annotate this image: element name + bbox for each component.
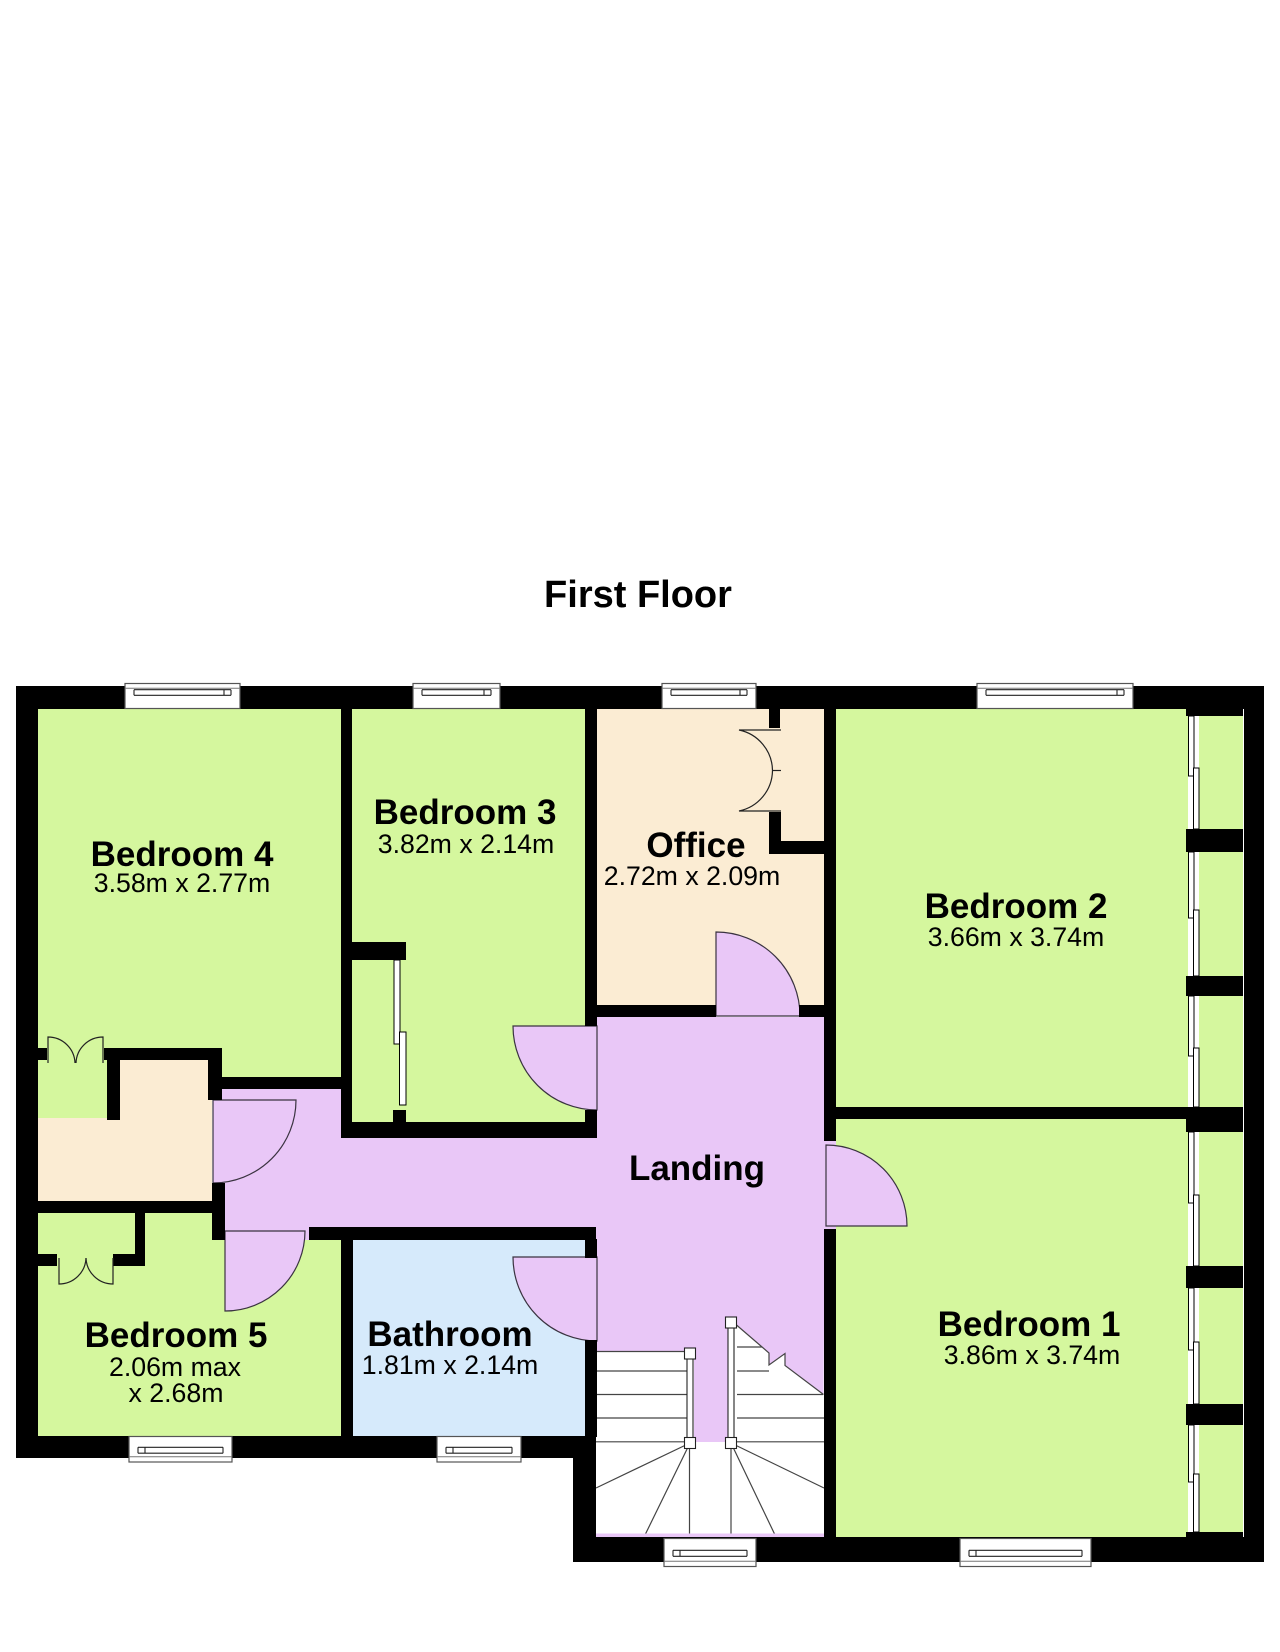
svg-text:Bedroom 2: Bedroom 2 [925, 887, 1108, 926]
svg-text:1.81m x 2.14m: 1.81m x 2.14m [362, 1350, 539, 1380]
svg-text:3.82m x 2.14m: 3.82m x 2.14m [378, 829, 555, 859]
svg-text:3.86m x 3.74m: 3.86m x 3.74m [944, 1340, 1121, 1370]
svg-text:Office: Office [646, 826, 745, 865]
svg-text:2.72m x 2.09m: 2.72m x 2.09m [604, 861, 781, 891]
svg-text:3.66m x 3.74m: 3.66m x 3.74m [928, 922, 1105, 952]
svg-text:Bathroom: Bathroom [367, 1315, 532, 1354]
svg-text:Landing: Landing [629, 1149, 765, 1188]
svg-text:Bedroom 3: Bedroom 3 [374, 793, 557, 832]
svg-text:Bedroom 1: Bedroom 1 [938, 1305, 1121, 1344]
svg-text:Bedroom 5: Bedroom 5 [85, 1316, 268, 1355]
svg-text:First Floor: First Floor [544, 574, 732, 616]
svg-text:3.58m x 2.77m: 3.58m x 2.77m [94, 868, 271, 898]
svg-text:x 2.68m: x 2.68m [129, 1378, 224, 1408]
